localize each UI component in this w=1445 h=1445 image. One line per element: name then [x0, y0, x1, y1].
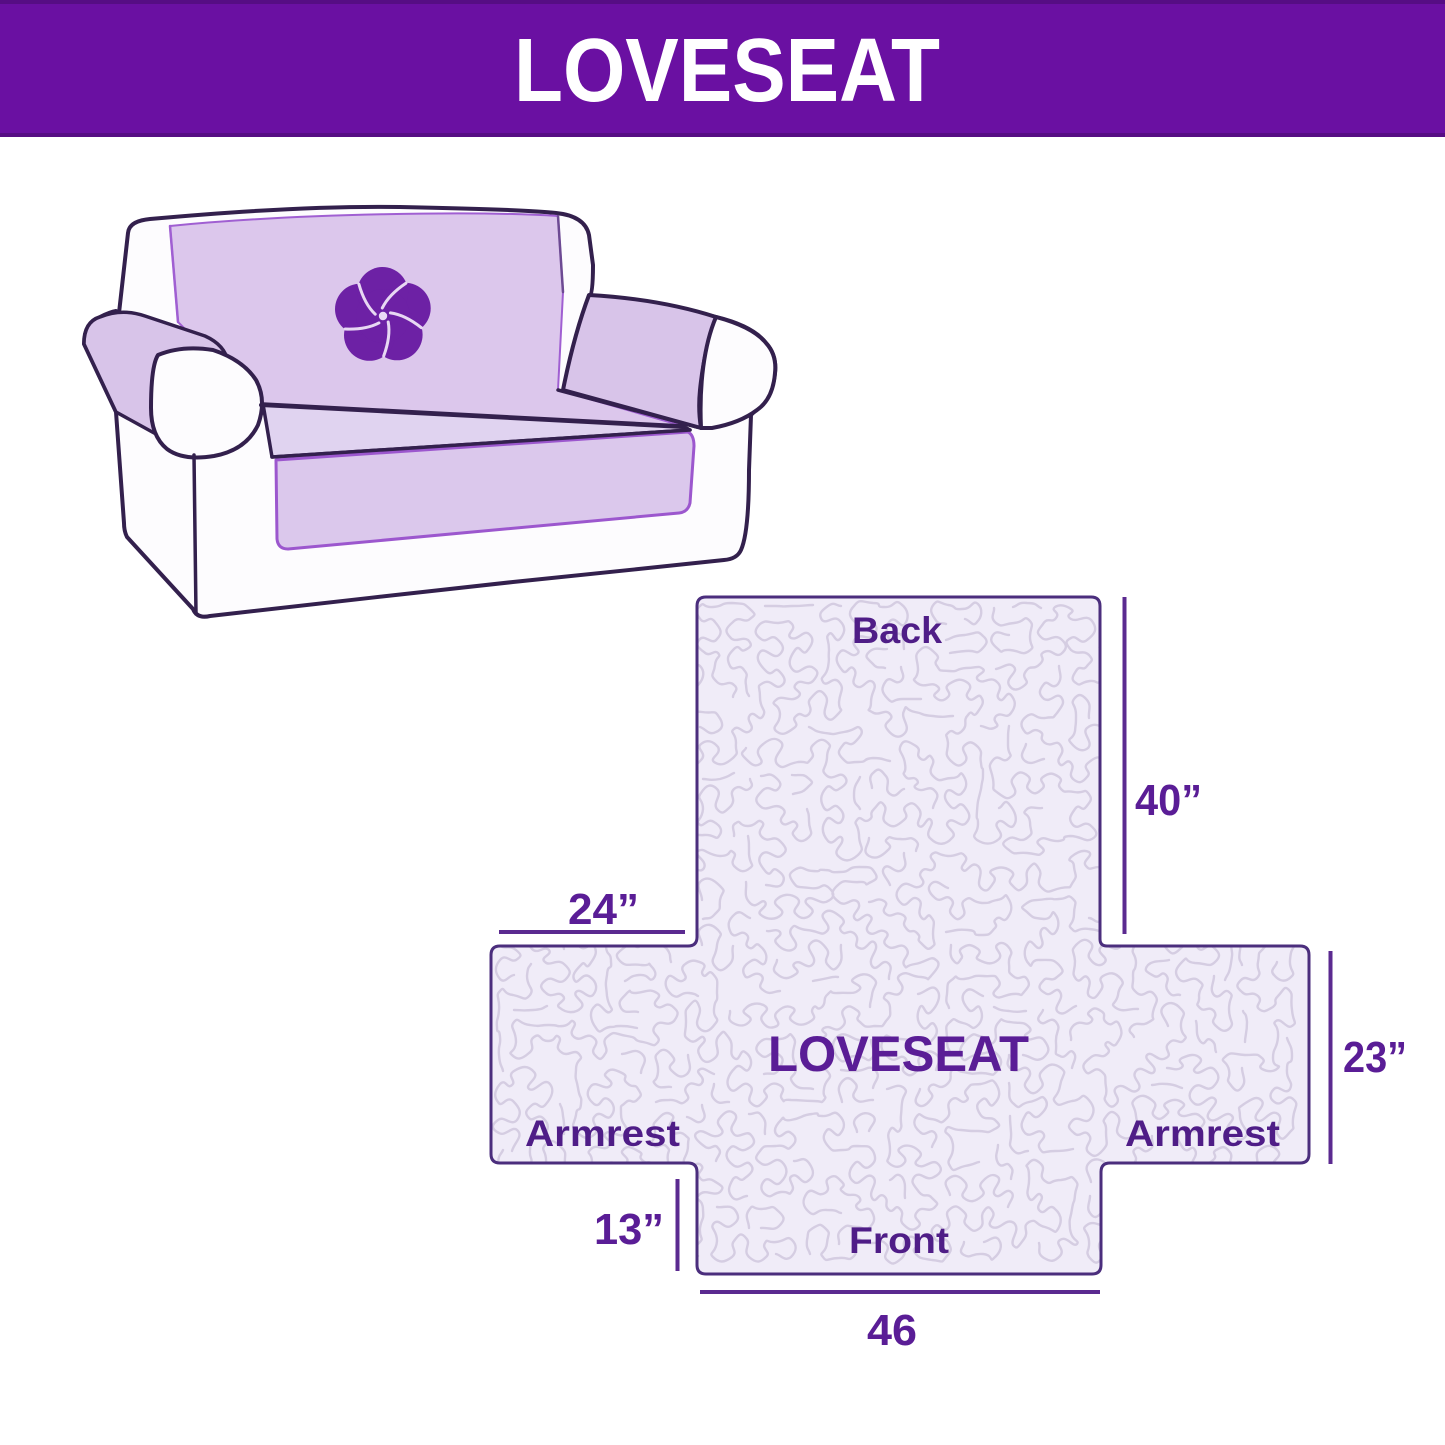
svg-text:24”: 24” — [568, 885, 639, 934]
svg-text:46: 46 — [867, 1306, 917, 1355]
svg-text:Armrest: Armrest — [1125, 1113, 1280, 1154]
svg-text:Armrest: Armrest — [525, 1113, 680, 1154]
svg-text:Front: Front — [849, 1220, 949, 1261]
svg-text:23”: 23” — [1343, 1033, 1407, 1082]
svg-text:LOVESEAT: LOVESEAT — [768, 1026, 1029, 1082]
svg-text:40”: 40” — [1135, 776, 1202, 825]
svg-text:Back: Back — [852, 610, 942, 651]
svg-text:LOVESEAT: LOVESEAT — [514, 21, 940, 121]
svg-text:13”: 13” — [594, 1205, 664, 1254]
